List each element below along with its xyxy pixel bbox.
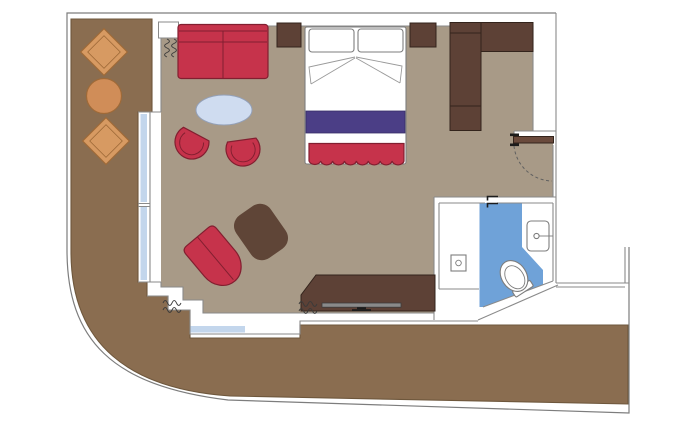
pillow-right [358, 29, 403, 52]
sofa [178, 25, 268, 79]
bottom-window [190, 326, 245, 333]
nightstand-right [410, 23, 436, 47]
tv-stand [357, 307, 366, 309]
nightstand-left [277, 23, 301, 47]
balcony-furniture [81, 29, 130, 165]
door-hinge-mark [510, 144, 519, 147]
foot-blanket [309, 144, 404, 165]
tv-base [352, 309, 371, 311]
balcony-round-table [87, 79, 122, 114]
balcony-window-lower [141, 207, 148, 280]
cabinet [159, 22, 179, 38]
oval-coffee-table [196, 95, 252, 125]
floor-plan [0, 0, 700, 433]
desk [301, 275, 435, 311]
pillow-left [309, 29, 354, 52]
balcony-window-upper [141, 114, 148, 202]
corridor-walls [556, 247, 629, 287]
tv [322, 303, 401, 307]
sink [527, 221, 553, 251]
door-leaf [514, 137, 554, 144]
shower-drain [451, 255, 466, 271]
bed-runner [306, 111, 405, 133]
door-hinge-mark [510, 134, 519, 137]
floor-plan-page [0, 0, 700, 433]
bathroom-door-bracket [488, 197, 499, 201]
